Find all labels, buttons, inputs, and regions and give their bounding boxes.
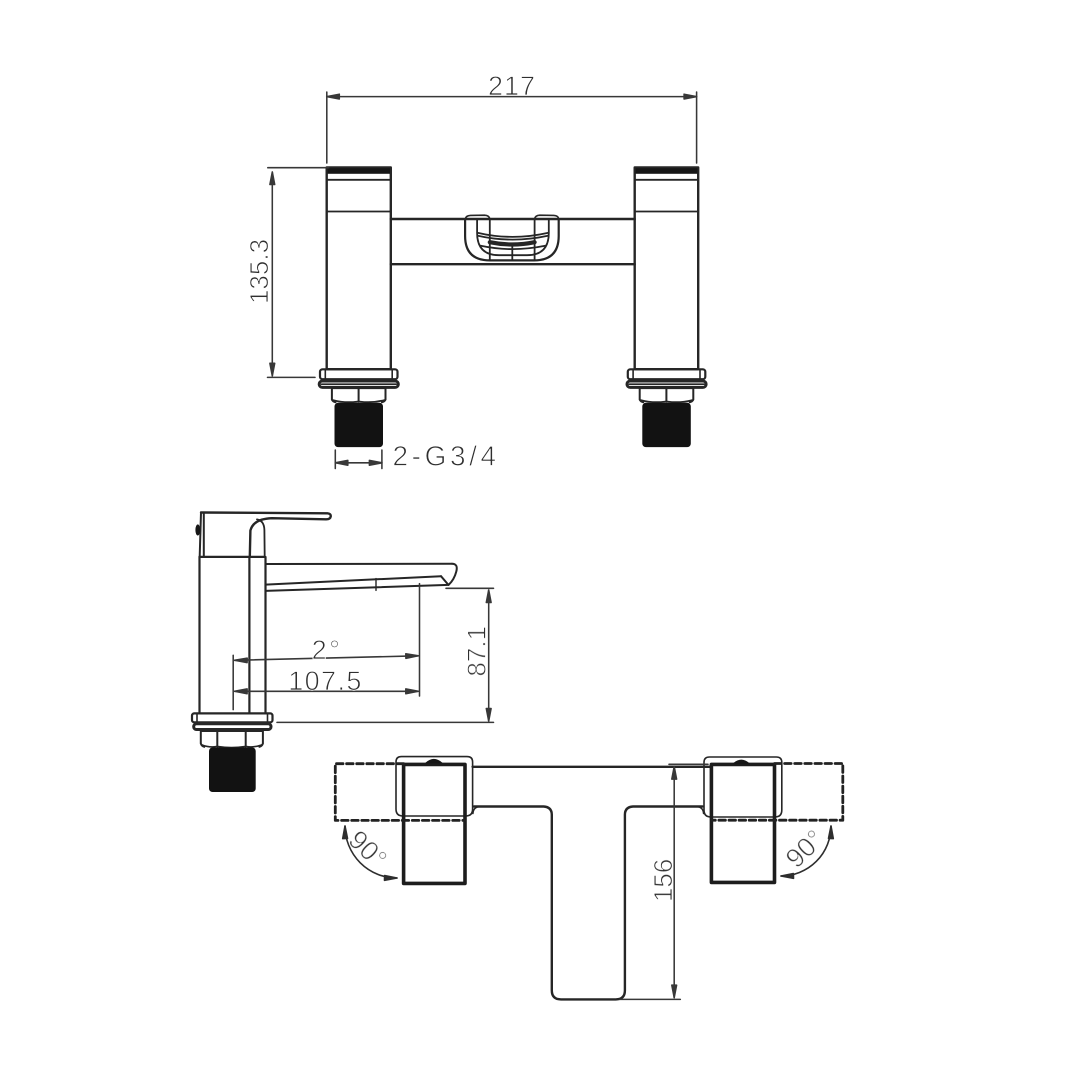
svg-text:217: 217 (488, 71, 536, 101)
svg-text:156: 156 (648, 859, 678, 902)
svg-text:90°: 90° (780, 824, 830, 874)
svg-text:87.1: 87.1 (461, 626, 491, 677)
svg-text:135.3: 135.3 (244, 239, 274, 304)
svg-text:107.5: 107.5 (288, 666, 363, 696)
svg-text:2-G3/4: 2-G3/4 (393, 441, 500, 472)
svg-text:90°: 90° (343, 824, 393, 874)
svg-text:2°: 2° (312, 635, 343, 665)
